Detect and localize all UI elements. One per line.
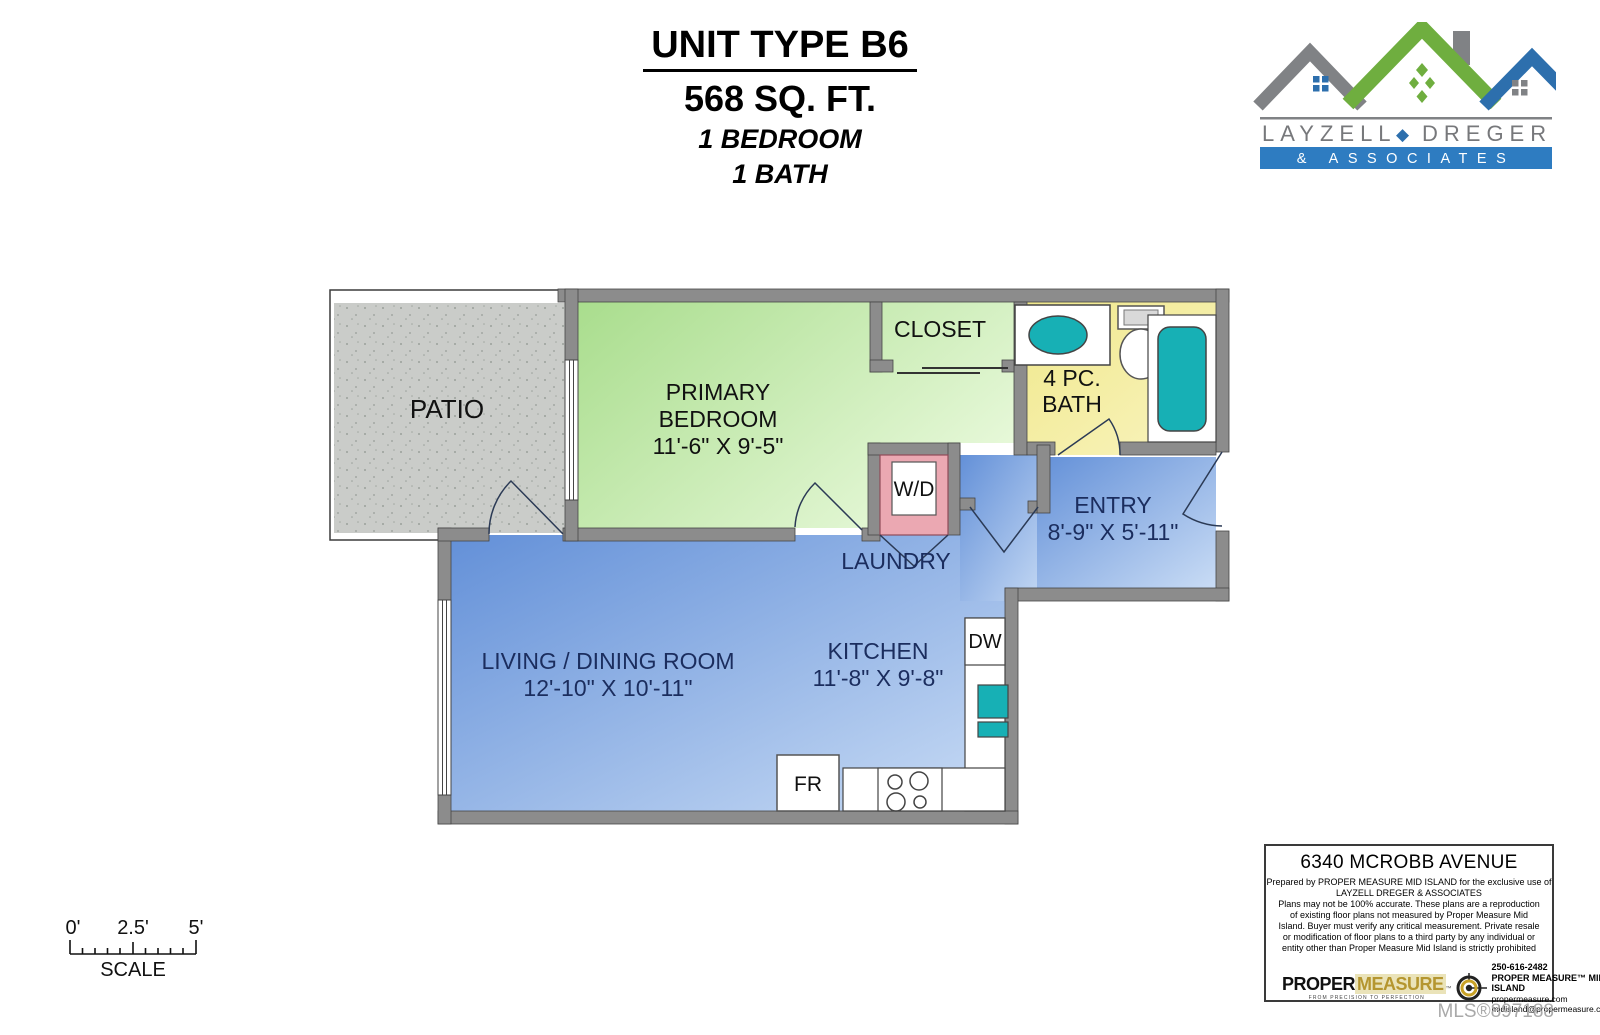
bath-count: 1 BATH — [480, 159, 1080, 190]
fridge-label: FR — [794, 773, 822, 796]
closet-label: CLOSET — [894, 316, 986, 342]
pm-company: PROPER MEASURE™ MID ISLAND — [1492, 973, 1600, 994]
bath-label-2: BATH — [1042, 391, 1102, 417]
logo-divider — [1260, 117, 1552, 120]
bedroom-count: 1 BEDROOM — [480, 124, 1080, 155]
brand-banner-text: & ASSOCIATES — [1297, 151, 1516, 167]
kitchen-label: KITCHEN — [828, 638, 929, 664]
floor-plan: PATIO PRIMARY BEDROOM 11'-6" X 9'-5" CLO… — [325, 285, 1235, 830]
pm-phone: 250-616-2482 — [1492, 962, 1600, 973]
brand-name-right: DREGER — [1422, 121, 1552, 146]
scale-bar: 0' 2.5' 5' SCALE — [56, 892, 216, 982]
title-block: UNIT TYPE B6 568 SQ. FT. 1 BEDROOM 1 BAT… — [480, 26, 1080, 190]
blue-window-icon — [1313, 76, 1329, 92]
living-label: LIVING / DINING ROOM — [481, 648, 734, 674]
proper-measure-logo: PROPERMEASURE™ FROM PRECISION TO PERFECT… — [1282, 975, 1452, 1001]
mls-number: MLS®897188 — [1340, 1001, 1554, 1023]
brand-logo: LAYZELL ◆ DREGER & ASSOCIATES — [1236, 22, 1556, 170]
diamond-cluster-icon — [1409, 63, 1435, 103]
scale-tick-0: 0' — [66, 917, 81, 939]
disclaimer-text: Plans may not be 100% accurate. These pl… — [1276, 899, 1542, 954]
wd-label: W/D — [894, 478, 935, 501]
living-dims: 12'-10" X 10'-11" — [523, 675, 692, 701]
diamond-icon: ◆ — [1396, 125, 1410, 144]
address: 6340 MCROBB AVENUE — [1266, 852, 1552, 874]
entry-label: ENTRY — [1074, 492, 1152, 518]
page-title: UNIT TYPE B6 — [643, 26, 917, 72]
bullseye-icon — [1454, 972, 1488, 1004]
disclaimer-box: 6340 MCROBB AVENUE Prepared by PROPER ME… — [1264, 844, 1554, 1002]
bath-label-1: 4 PC. — [1043, 365, 1101, 391]
hall-floor — [960, 455, 1050, 601]
bedroom-label-1: PRIMARY — [666, 379, 770, 405]
scale-label: SCALE — [100, 959, 166, 981]
prepared-line-2: LAYZELL DREGER & ASSOCIATES — [1266, 888, 1552, 899]
bedroom-label-2: BEDROOM — [659, 406, 778, 432]
pm-trademark: ™ — [1446, 986, 1452, 992]
laundry-label: LAUNDRY — [841, 548, 951, 574]
pm-word-measure: MEASURE — [1355, 974, 1446, 994]
pm-word-proper: PROPER — [1282, 974, 1355, 994]
prepared-line-1: Prepared by PROPER MEASURE MID ISLAND fo… — [1266, 877, 1552, 888]
bathtub-icon — [1148, 315, 1216, 442]
brand-name-left: LAYZELL — [1262, 121, 1397, 146]
area-text: 568 SQ. FT. — [480, 78, 1080, 120]
scale-ruler-icon — [70, 940, 196, 954]
kitchen-sink-icon — [978, 685, 1008, 737]
dishwasher-label: DW — [968, 631, 1001, 653]
bedroom-dims: 11'-6" X 9'-5" — [653, 433, 784, 459]
patio-label: PATIO — [410, 394, 484, 424]
entry-dims: 8'-9" X 5'-11" — [1048, 519, 1179, 545]
scale-tick-mid: 2.5' — [117, 917, 149, 939]
right-roof-icon — [1484, 57, 1556, 106]
scale-tick-end: 5' — [189, 917, 204, 939]
house-roofs-icon — [1258, 28, 1556, 106]
vanity-sink-icon — [1015, 305, 1110, 365]
kitchen-dims: 11'-8" X 9'-8" — [813, 665, 944, 691]
floorplan-page: UNIT TYPE B6 568 SQ. FT. 1 BEDROOM 1 BAT… — [0, 0, 1600, 1035]
gray-window-icon — [1512, 80, 1528, 96]
